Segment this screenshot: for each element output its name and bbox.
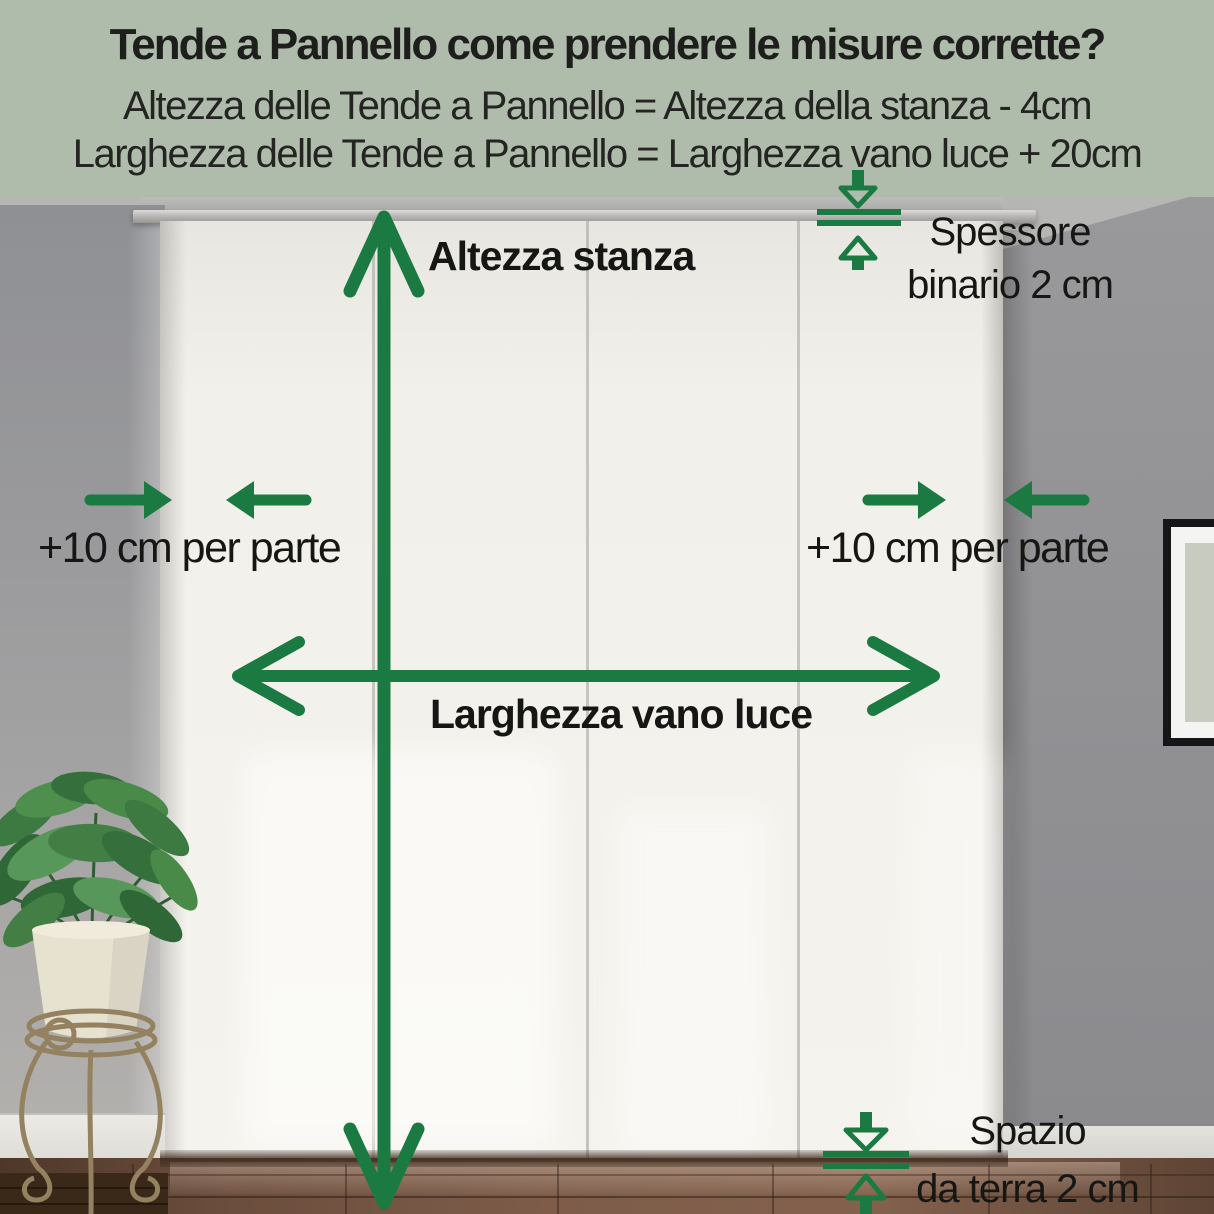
grout-line	[345, 1164, 347, 1214]
room-height-label: Altezza stanza	[428, 233, 694, 280]
floor-gap-line1: Spazio	[900, 1102, 1155, 1160]
potted-plant	[0, 758, 200, 1214]
window-glow	[618, 806, 768, 1156]
header-band: Tende a Pannello come prendere le misure…	[0, 0, 1214, 197]
window-glow	[908, 751, 998, 1151]
track-thickness-line1: Spessore	[880, 206, 1140, 259]
grout-line	[772, 1164, 774, 1214]
floor-gap-line2: da terra 2 cm	[900, 1160, 1155, 1214]
opening-width-label: Larghezza vano luce	[430, 691, 812, 738]
page-title: Tende a Pannello come prendere le misure…	[0, 20, 1214, 70]
picture-frame	[1163, 519, 1214, 746]
side-allowance-left-label: +10 cm per parte	[38, 524, 340, 573]
side-allowance-right-label: +10 cm per parte	[806, 524, 1108, 573]
infographic-canvas: Tende a Pannello come prendere le misure…	[0, 0, 1214, 1214]
width-formula: Larghezza delle Tende a Pannello = Largh…	[0, 132, 1214, 177]
floor-gap-label: Spazio da terra 2 cm	[900, 1102, 1155, 1214]
plant-pot	[32, 921, 150, 1038]
curtain-floor-shadow	[160, 1150, 1008, 1167]
window-glow	[242, 751, 558, 1151]
track-thickness-line2: binario 2 cm	[880, 259, 1140, 312]
plant-stand	[22, 1011, 161, 1214]
height-formula: Altezza delle Tende a Pannello = Altezza…	[0, 84, 1214, 129]
frame-artwork	[1185, 543, 1214, 722]
track-thickness-label: Spessore binario 2 cm	[880, 206, 1140, 312]
right-wall-shadow	[1003, 230, 1033, 1130]
grout-line	[557, 1164, 559, 1214]
